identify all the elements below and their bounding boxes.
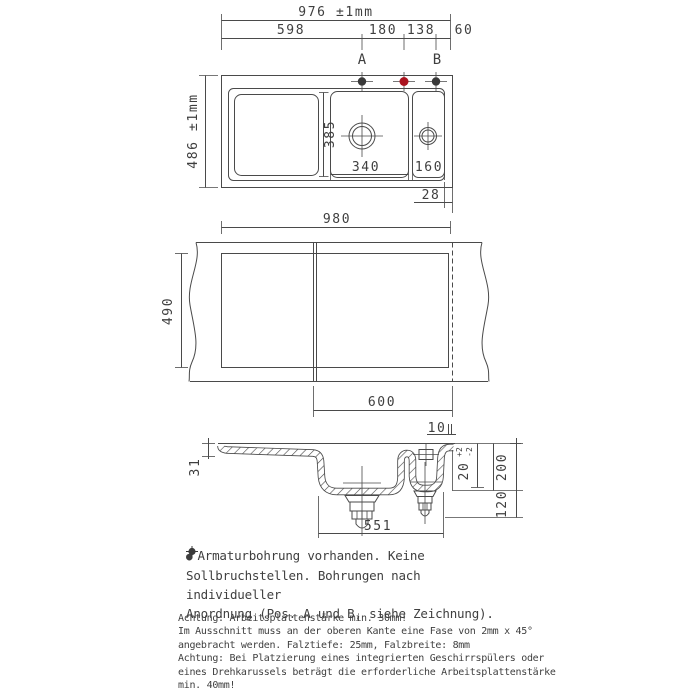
small-drain bbox=[414, 122, 442, 150]
bullet-note-line-1: ●Armaturbohrung vorhanden. Keine bbox=[186, 546, 516, 566]
dim-seg-138: 138 bbox=[407, 23, 435, 38]
dim-gap: 10 bbox=[427, 421, 456, 436]
top-view: 976 ±1mm 598 180 138 60 A B 486 ±1mm bbox=[186, 5, 473, 213]
dim-overall-width-text: 976 ±1mm bbox=[298, 5, 373, 20]
dim-front-edge: 31 bbox=[188, 438, 215, 476]
cutout-rect bbox=[222, 254, 449, 368]
break-line-right bbox=[481, 243, 489, 382]
hole-b-label: B bbox=[433, 52, 441, 68]
dim-551-text: 551 bbox=[364, 519, 392, 534]
dim-160-text: 160 bbox=[415, 160, 443, 175]
dim-385-text: 385 bbox=[323, 120, 338, 148]
bullet-note-line-2: Sollbruchstellen. Bohrungen nach individ… bbox=[186, 566, 516, 604]
warning-line: Achtung: Bei Platzierung eines integrier… bbox=[178, 652, 558, 665]
dim-overall-depth: 486 ±1mm bbox=[186, 76, 218, 188]
dim-cutout-depth: 490 bbox=[161, 254, 188, 368]
dim-overall-depth-text: 486 ±1mm bbox=[186, 93, 201, 168]
dim-490-text: 490 bbox=[161, 297, 176, 325]
warning-line: eines Drehkarussels beträgt die erforder… bbox=[178, 666, 558, 679]
dim-600-text: 600 bbox=[368, 395, 396, 410]
dim-seg-60: 60 bbox=[455, 23, 474, 38]
dim-main-bowl-depth: 385 bbox=[319, 93, 338, 177]
dim-31-text: 31 bbox=[188, 458, 203, 477]
warning-line: Achtung: Arbeitsplattenstärke min. 30mm! bbox=[178, 612, 558, 625]
dim-980-text: 980 bbox=[323, 212, 351, 227]
warning-line: min. 40mm! bbox=[178, 679, 558, 692]
hole-optional-dot-icon bbox=[400, 77, 409, 86]
section-tap-hole-marker bbox=[413, 444, 439, 466]
dim-seg-598: 598 bbox=[277, 23, 305, 38]
dim-rear-edge: 28 bbox=[414, 178, 453, 213]
dim-cutout-offset: 600 bbox=[314, 386, 453, 417]
section-view: 10 31 bbox=[188, 421, 523, 538]
dim-120-text: 120 bbox=[495, 490, 510, 518]
dim-340-text: 340 bbox=[352, 160, 380, 175]
warning-line: Im Ausschnitt muss an der oberen Kante e… bbox=[178, 625, 558, 638]
dim-seg-180: 180 bbox=[369, 23, 397, 38]
technical-drawing: 976 ±1mm 598 180 138 60 A B 486 ±1mm bbox=[0, 0, 700, 545]
dim-rim: 20 +2 -2 bbox=[455, 444, 484, 488]
dim-cutout-width: 980 bbox=[222, 212, 451, 234]
dim-segments: 598 180 138 60 bbox=[222, 23, 474, 50]
dim-200-text: 200 bbox=[495, 453, 510, 481]
main-drain bbox=[341, 115, 383, 157]
warning-line: angebracht werden. Falztiefe: 25mm, Falz… bbox=[178, 639, 558, 652]
hole-a-dot-icon bbox=[358, 77, 366, 85]
hole-a-label: A bbox=[358, 52, 367, 68]
dim-20-text: 20 bbox=[457, 462, 472, 481]
dim-10-text: 10 bbox=[428, 421, 447, 436]
warning-notes: Achtung: Arbeitsplattenstärke min. 30mm!… bbox=[178, 612, 558, 692]
dim-20-tol-plus: +2 bbox=[455, 447, 464, 457]
drainboard bbox=[235, 95, 319, 176]
dim-20-tol-minus: -2 bbox=[465, 447, 474, 457]
hole-b-dot-icon bbox=[432, 77, 440, 85]
break-line-left bbox=[189, 243, 197, 382]
dim-28-text: 28 bbox=[422, 188, 441, 203]
cutout-view: 980 490 600 bbox=[161, 212, 489, 417]
